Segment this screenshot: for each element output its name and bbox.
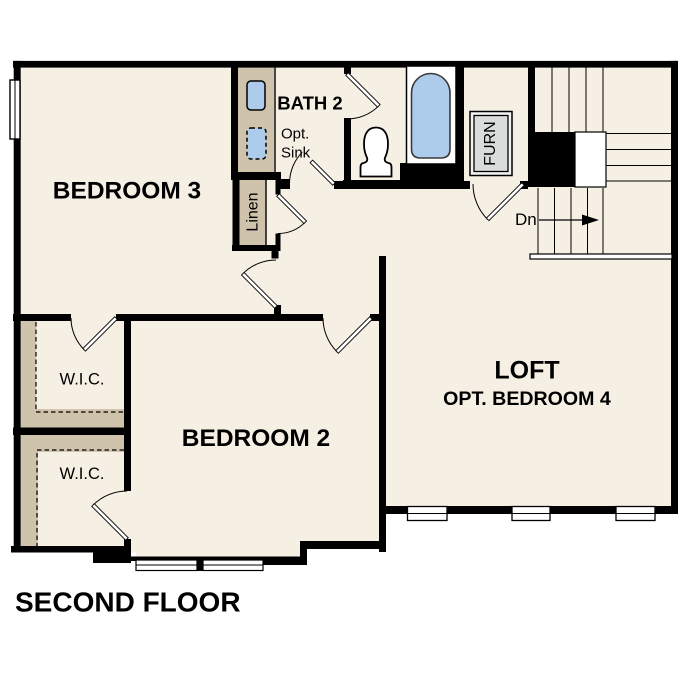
svg-text:LOFT: LOFT	[494, 357, 559, 385]
svg-text:Linen: Linen	[245, 192, 262, 231]
svg-text:Opt.: Opt.	[281, 126, 309, 143]
svg-text:OPT. BEDROOM 4: OPT. BEDROOM 4	[443, 388, 611, 410]
svg-text:Sink: Sink	[281, 145, 311, 162]
svg-text:BEDROOM 2: BEDROOM 2	[182, 425, 330, 452]
svg-text:W.I.C.: W.I.C.	[60, 371, 105, 389]
svg-text:BATH 2: BATH 2	[277, 93, 342, 114]
svg-text:BEDROOM 3: BEDROOM 3	[53, 178, 201, 205]
svg-text:FURN: FURN	[482, 121, 499, 165]
svg-text:SECOND FLOOR: SECOND FLOOR	[15, 587, 241, 618]
svg-text:Dn: Dn	[515, 210, 537, 229]
svg-text:W.I.C.: W.I.C.	[60, 465, 105, 483]
